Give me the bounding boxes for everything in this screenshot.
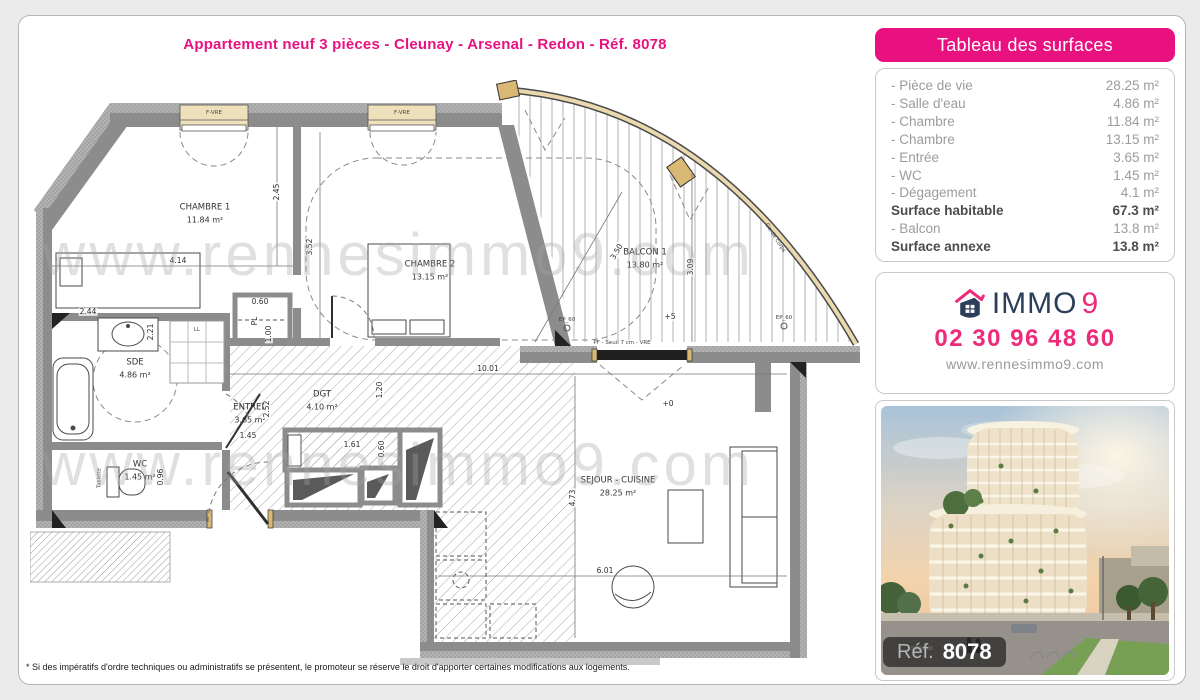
dim-label: 2.44 bbox=[79, 308, 98, 316]
room-label-chambre2: CHAMBRE 213.15 m² bbox=[405, 260, 456, 285]
table-row: - Chambre13.15 m² bbox=[891, 131, 1159, 149]
dim-label: 3.09 bbox=[687, 258, 695, 277]
surfaces-table-header: Tableau des surfaces bbox=[875, 28, 1175, 62]
floor-plan-drawing bbox=[30, 80, 860, 665]
level-label: +0 bbox=[661, 400, 674, 408]
dim-label: 2.52 bbox=[263, 400, 271, 419]
phone-number: 02 30 96 48 60 bbox=[876, 325, 1174, 353]
floor-plan: www.rennesimmo9.com www.rennesimmo9.com … bbox=[30, 80, 860, 665]
dim-label: 1.61 bbox=[343, 441, 362, 449]
bay-window bbox=[597, 350, 687, 360]
dim-label: 0.60 bbox=[378, 440, 386, 459]
ep-label: EP_60 bbox=[775, 315, 794, 321]
room-label-sejour: SEJOUR - CUISINE28.25 m² bbox=[581, 476, 656, 501]
wardrobes bbox=[285, 430, 440, 505]
dim-label: 0.60 bbox=[251, 298, 270, 306]
dim-label: 0.96 bbox=[157, 468, 165, 487]
table-row-total: Surface annexe13.8 m² bbox=[891, 238, 1159, 256]
building-render bbox=[881, 406, 1169, 675]
footnote: * Si des impératifs d'ordre techniques o… bbox=[26, 662, 630, 672]
armchair-icon bbox=[612, 566, 654, 608]
reference-label: Réf. bbox=[897, 641, 934, 664]
dim-label: 4.14 bbox=[169, 257, 188, 265]
dim-label: 10.01 bbox=[476, 365, 499, 373]
room-label-balcon: BALCON 113.80 m² bbox=[623, 248, 666, 273]
building-photo: Réf. 8078 bbox=[881, 406, 1169, 675]
dim-label: 1.20 bbox=[376, 381, 384, 400]
toilet-tank-icon bbox=[107, 467, 119, 497]
table-row: - Entrée3.65 m² bbox=[891, 149, 1159, 167]
ep-label: EP_60 bbox=[558, 317, 577, 323]
dim-label: 2.21 bbox=[147, 323, 155, 342]
brand-immo: IMMO bbox=[992, 287, 1078, 321]
agency-card: IMMO9 02 30 96 48 60 www.rennesimmo9.com bbox=[875, 272, 1175, 394]
reference-badge: Réf. 8078 bbox=[883, 637, 1006, 667]
dim-label: 2.45 bbox=[273, 183, 281, 202]
room-label-sde: SDE4.86 m² bbox=[119, 358, 150, 383]
window-label: F-VRE bbox=[393, 110, 411, 116]
shelf-label: Tablette bbox=[97, 467, 103, 489]
room-label-chambre1: CHAMBRE 111.84 m² bbox=[180, 203, 231, 228]
table-row: - Salle d'eau4.86 m² bbox=[891, 95, 1159, 113]
surfaces-table: - Pièce de vie28.25 m² - Salle d'eau4.86… bbox=[875, 68, 1175, 262]
table-row: - WC1.45 m² bbox=[891, 167, 1159, 185]
table-row: - Pièce de vie28.25 m² bbox=[891, 77, 1159, 95]
page-title: Appartement neuf 3 pièces - Cleunay - Ar… bbox=[130, 36, 720, 53]
table-row: - Balcon13.8 m² bbox=[891, 220, 1159, 238]
dim-label: 1.00 bbox=[265, 325, 273, 344]
house-icon bbox=[952, 288, 988, 320]
reference-number: 8078 bbox=[943, 639, 992, 665]
table-row-total: Surface habitable67.3 m² bbox=[891, 202, 1159, 220]
table-row: - Chambre11.84 m² bbox=[891, 113, 1159, 131]
building-photo-card: Réf. 8078 bbox=[875, 400, 1175, 681]
dim-label: 6.01 bbox=[596, 567, 615, 575]
table-row: - Dégagement4.1 m² bbox=[891, 184, 1159, 202]
window-label: F-VRE bbox=[205, 110, 223, 116]
room-label-dgt: DGT4.10 m² bbox=[306, 390, 337, 415]
dim-label: 3.52 bbox=[306, 238, 314, 257]
closet-label: PL bbox=[251, 316, 259, 327]
bay-label: PF - Seuil 7 cm - VRE bbox=[592, 340, 651, 346]
washer-label: LL bbox=[193, 327, 201, 333]
room-label-wc: WC1.45 m² bbox=[124, 460, 155, 485]
level-label: +5 bbox=[663, 313, 676, 321]
brand-9: 9 bbox=[1081, 287, 1098, 321]
website-url: www.rennesimmo9.com bbox=[876, 356, 1174, 372]
dim-label: 1.45 bbox=[239, 432, 258, 440]
agency-logo: IMMO9 bbox=[876, 287, 1174, 321]
dim-label: 4.73 bbox=[569, 489, 577, 508]
table-icon bbox=[668, 490, 703, 543]
